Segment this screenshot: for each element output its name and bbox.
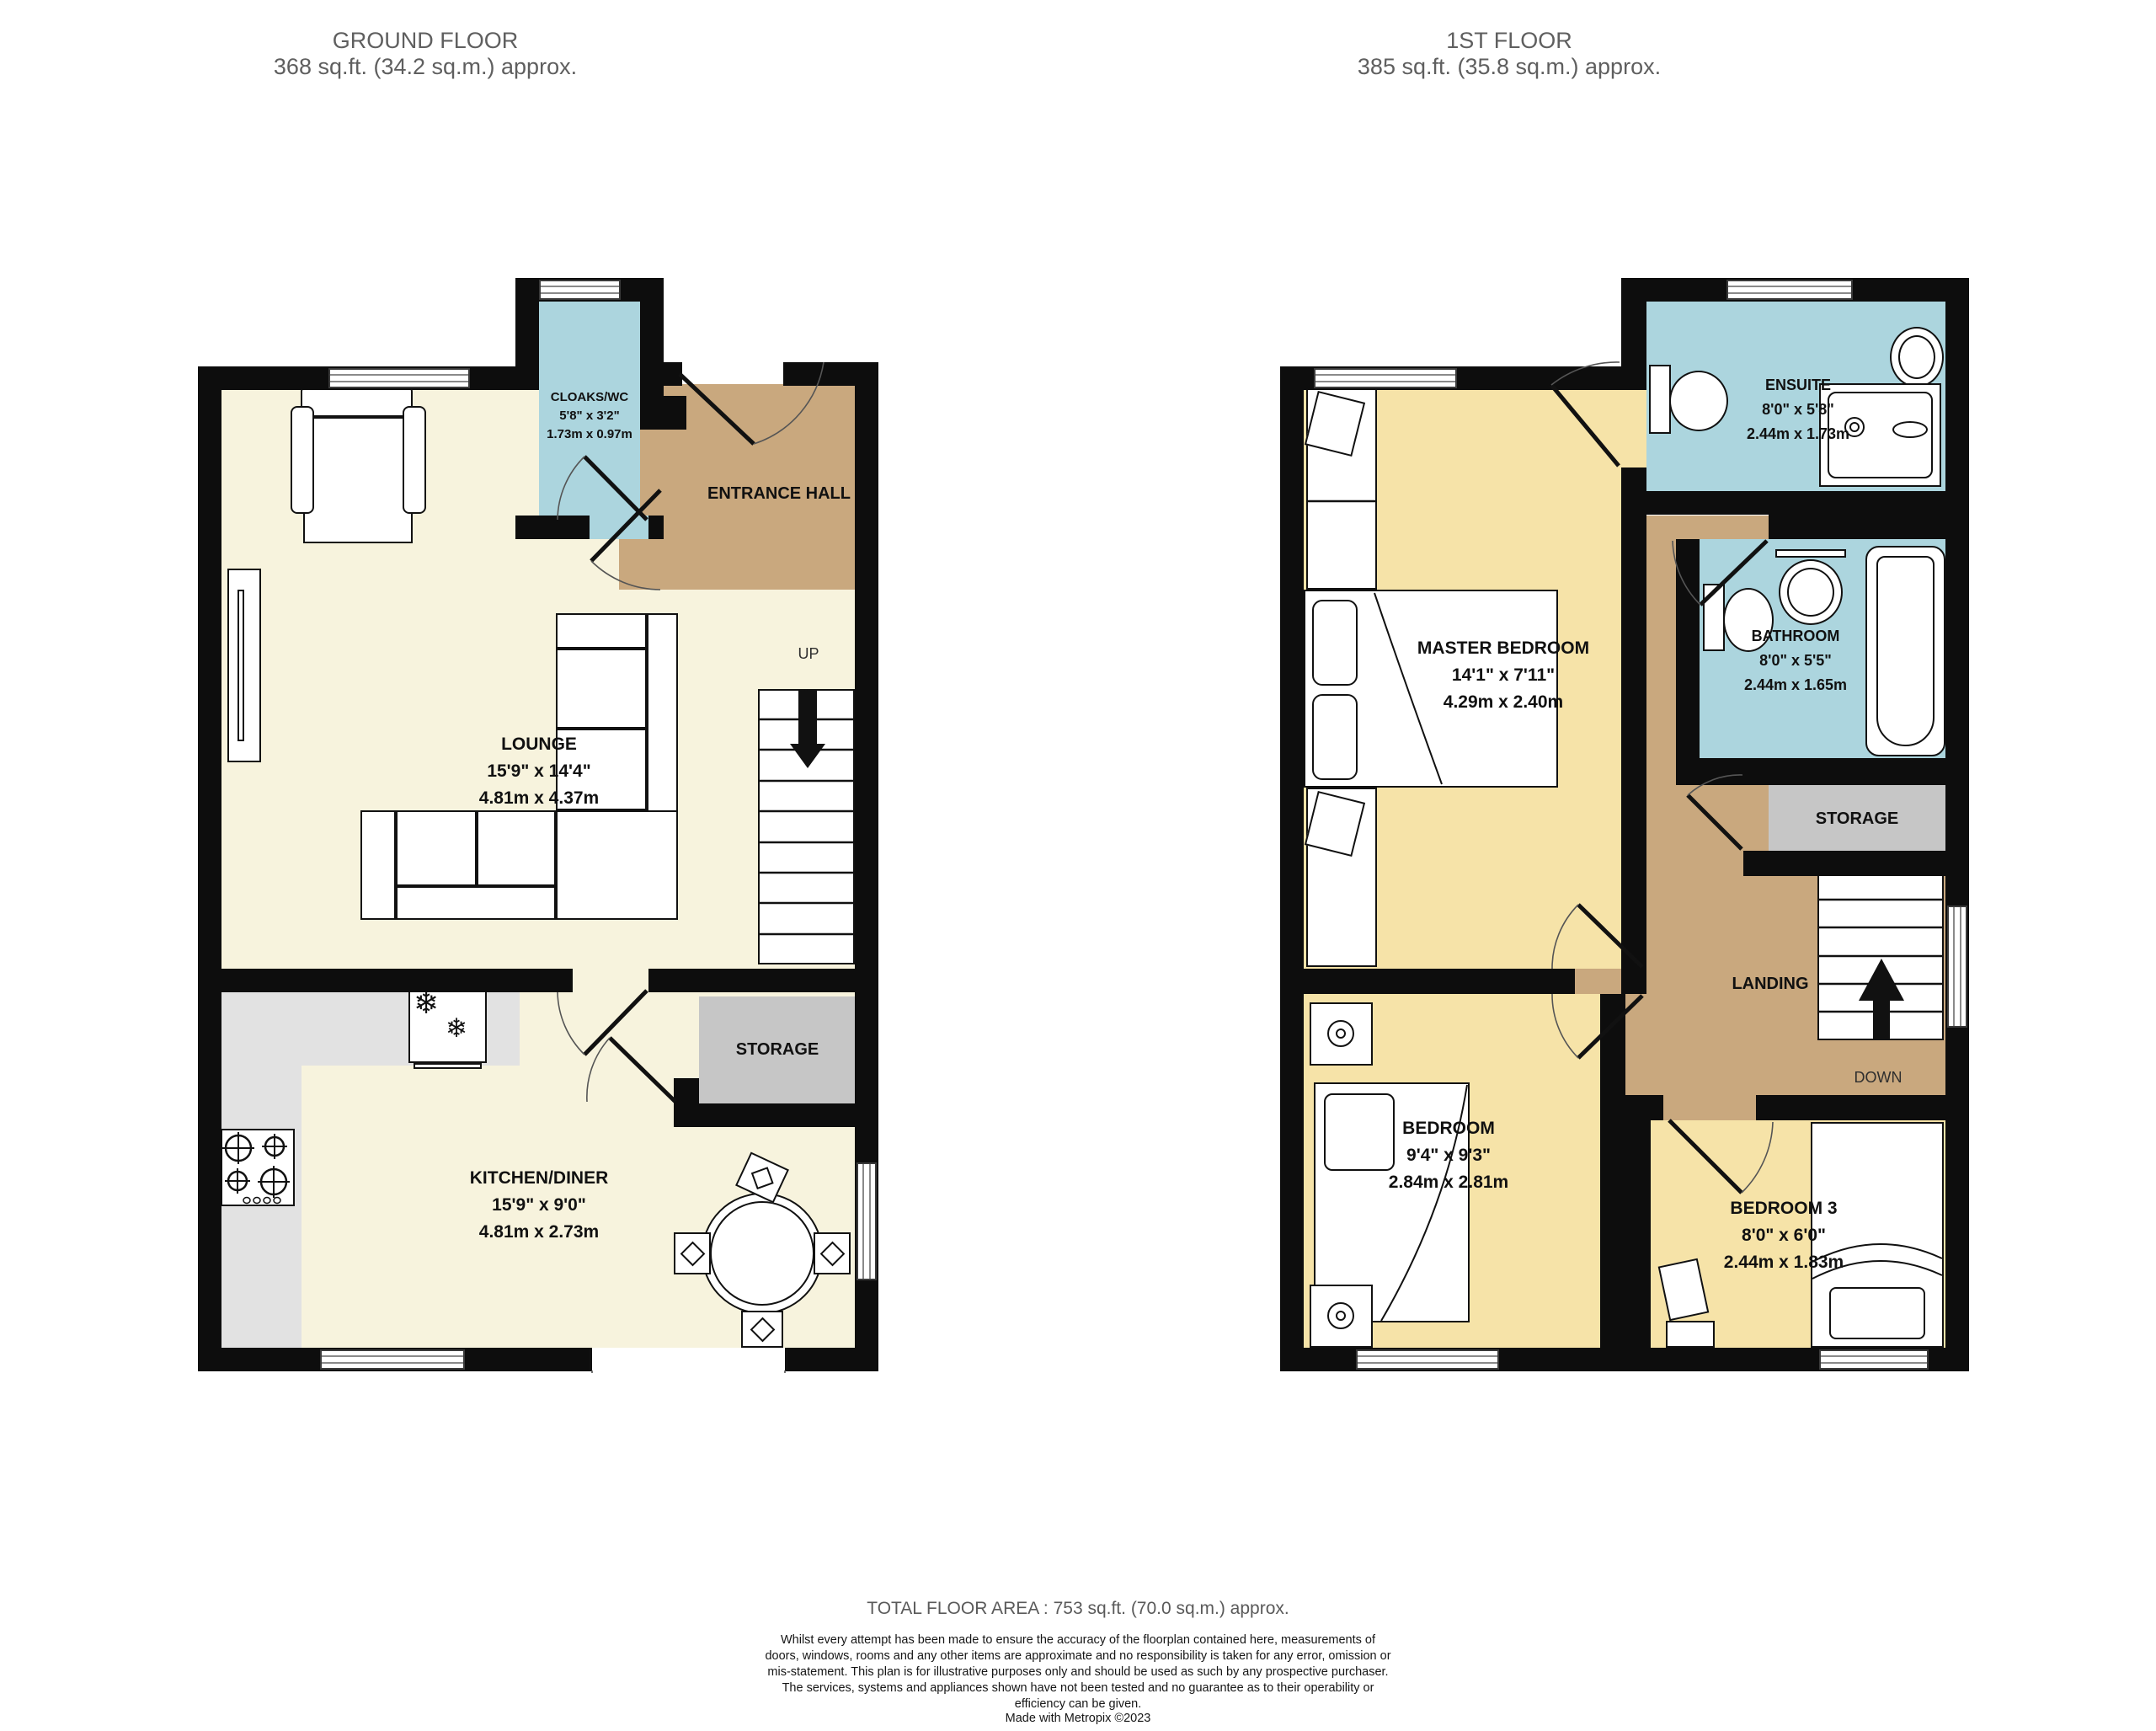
sink-bowl bbox=[1787, 568, 1834, 617]
hob bbox=[221, 1129, 295, 1206]
window bbox=[1314, 368, 1457, 388]
toilet bbox=[1669, 371, 1728, 431]
bathtub-basin bbox=[1876, 556, 1935, 746]
lounge-label: LOUNGE 15'9" x 14'4" 4.81m x 4.37m bbox=[479, 731, 599, 812]
armchair-arm bbox=[403, 406, 426, 514]
lamp bbox=[1336, 1028, 1346, 1039]
wall bbox=[664, 362, 682, 386]
wall bbox=[1756, 1095, 1945, 1120]
disclaimer-text: Whilst every attempt has been made to en… bbox=[765, 1632, 1392, 1712]
wall bbox=[1769, 515, 1969, 539]
chair-seat bbox=[750, 1317, 775, 1342]
shower-head bbox=[1892, 421, 1928, 438]
wall bbox=[674, 1103, 878, 1127]
pillow bbox=[1312, 694, 1358, 780]
bedroom-label: BEDROOM 9'4" x 9'3" 2.84m x 2.81m bbox=[1389, 1115, 1508, 1196]
wall bbox=[648, 516, 664, 539]
dining-chair bbox=[814, 1232, 851, 1274]
bedroom3-label: BEDROOM 3 8'0" x 6'0" 2.44m x 1.83m bbox=[1724, 1195, 1844, 1276]
wall bbox=[1621, 467, 1646, 994]
wall bbox=[198, 366, 221, 1371]
door-opening bbox=[1621, 390, 1646, 467]
entrance-hall-label: ENTRANCE HALL bbox=[707, 484, 851, 504]
sink-bowl bbox=[1898, 335, 1935, 379]
pillow bbox=[1312, 600, 1358, 686]
first-floor-area: 385 sq.ft. (35.8 sq.m.) approx. bbox=[1358, 54, 1661, 80]
window bbox=[328, 368, 470, 388]
radiator bbox=[227, 569, 261, 762]
lamp bbox=[1336, 1311, 1346, 1321]
window bbox=[1726, 280, 1853, 300]
window bbox=[1819, 1349, 1929, 1370]
sofa-back bbox=[396, 886, 556, 920]
ground-floor-plan: ❄ ❄ LOUNGE 15'9" x 14'4" 4.81m x 4.37m K… bbox=[198, 278, 880, 1373]
sofa-seat bbox=[556, 649, 647, 729]
wall bbox=[1600, 994, 1625, 1348]
sofa-seat bbox=[477, 810, 556, 886]
chair-seat bbox=[819, 1241, 845, 1266]
wall bbox=[674, 1078, 699, 1103]
ground-floor-title: GROUND FLOOR bbox=[274, 28, 577, 54]
window bbox=[857, 1162, 877, 1280]
armchair bbox=[303, 417, 413, 543]
wall bbox=[1676, 758, 1969, 785]
armchair-arm bbox=[291, 406, 314, 514]
ground-floor-header: GROUND FLOOR 368 sq.ft. (34.2 sq.m.) app… bbox=[274, 28, 577, 80]
desk bbox=[1666, 1321, 1715, 1348]
storage-label: STORAGE bbox=[1816, 809, 1899, 829]
shower-drain bbox=[1849, 422, 1860, 432]
landing-label: LANDING bbox=[1732, 974, 1808, 994]
sofa-corner bbox=[556, 810, 678, 920]
staircase bbox=[1817, 872, 1944, 1040]
wall bbox=[640, 278, 664, 396]
metropix-credit: Made with Metropix ©2023 bbox=[0, 1712, 2156, 1725]
first-floor-header: 1ST FLOOR 385 sq.ft. (35.8 sq.m.) approx… bbox=[1358, 28, 1661, 80]
sofa-armrest bbox=[556, 613, 647, 649]
wall bbox=[1625, 1120, 1651, 1348]
snowflake-icon: ❄ bbox=[414, 989, 439, 1019]
window bbox=[320, 1349, 465, 1370]
landing-floor bbox=[1646, 758, 1676, 785]
cloaks-label: CLOAKS/WC 5'8" x 3'2" 1.73m x 0.97m bbox=[547, 388, 632, 444]
staircase bbox=[758, 689, 855, 964]
wall bbox=[1280, 366, 1304, 1371]
down-label: DOWN bbox=[1854, 1068, 1903, 1087]
window bbox=[539, 280, 621, 300]
wall bbox=[515, 516, 590, 539]
landing-floor bbox=[1646, 539, 1676, 758]
snowflake-icon: ❄ bbox=[446, 1016, 467, 1042]
up-label: UP bbox=[798, 644, 819, 663]
sink-backsplash bbox=[1775, 549, 1846, 558]
first-floor-title: 1ST FLOOR bbox=[1358, 28, 1661, 54]
wall bbox=[1625, 1095, 1663, 1120]
french-door-opening bbox=[590, 1348, 787, 1371]
window bbox=[1356, 1349, 1499, 1370]
first-floor-plan: MASTER BEDROOM 14'1" x 7'11" 4.29m x 2.4… bbox=[1280, 278, 1971, 1373]
wall bbox=[198, 969, 573, 992]
chair-seat bbox=[751, 1167, 774, 1189]
wall bbox=[1676, 539, 1700, 758]
pillow bbox=[1324, 1093, 1395, 1171]
ensuite-label: ENSUITE 8'0" x 5'8" 2.44m x 1.73m bbox=[1747, 373, 1849, 446]
chair-seat bbox=[680, 1241, 705, 1266]
landing-floor bbox=[1646, 516, 1769, 539]
total-floor-area: TOTAL FLOOR AREA : 753 sq.ft. (70.0 sq.m… bbox=[0, 1599, 2156, 1619]
master-bedroom-label: MASTER BEDROOM 14'1" x 7'11" 4.29m x 2.4… bbox=[1417, 635, 1589, 716]
kitchen-label: KITCHEN/DINER 15'9" x 9'0" 4.81m x 2.73m bbox=[470, 1165, 609, 1246]
wall bbox=[1304, 969, 1575, 994]
bathroom-label: BATHROOM 8'0" x 5'5" 2.44m x 1.65m bbox=[1744, 624, 1847, 697]
dining-chair bbox=[674, 1232, 711, 1274]
fridge-plinth bbox=[414, 1063, 482, 1069]
dining-table-top bbox=[710, 1201, 814, 1306]
ground-floor-area: 368 sq.ft. (34.2 sq.m.) approx. bbox=[274, 54, 577, 80]
toilet-cistern bbox=[1703, 584, 1725, 651]
wall bbox=[640, 396, 686, 430]
radiator-fin bbox=[237, 590, 244, 741]
front-door-opening bbox=[682, 364, 783, 384]
wall bbox=[1646, 491, 1969, 515]
door-opening bbox=[1663, 1095, 1756, 1120]
storage-label: STORAGE bbox=[736, 1039, 819, 1060]
sofa-seat bbox=[396, 810, 477, 886]
sofa-armrest bbox=[360, 810, 396, 920]
pillow bbox=[1829, 1287, 1925, 1339]
dining-chair bbox=[741, 1311, 783, 1348]
window bbox=[1947, 906, 1967, 1028]
door-opening bbox=[590, 516, 648, 539]
toilet-cistern bbox=[1649, 365, 1671, 434]
wall bbox=[648, 969, 855, 992]
wall bbox=[1945, 278, 1969, 1371]
wall bbox=[1743, 851, 1969, 876]
door-opening bbox=[573, 969, 648, 992]
